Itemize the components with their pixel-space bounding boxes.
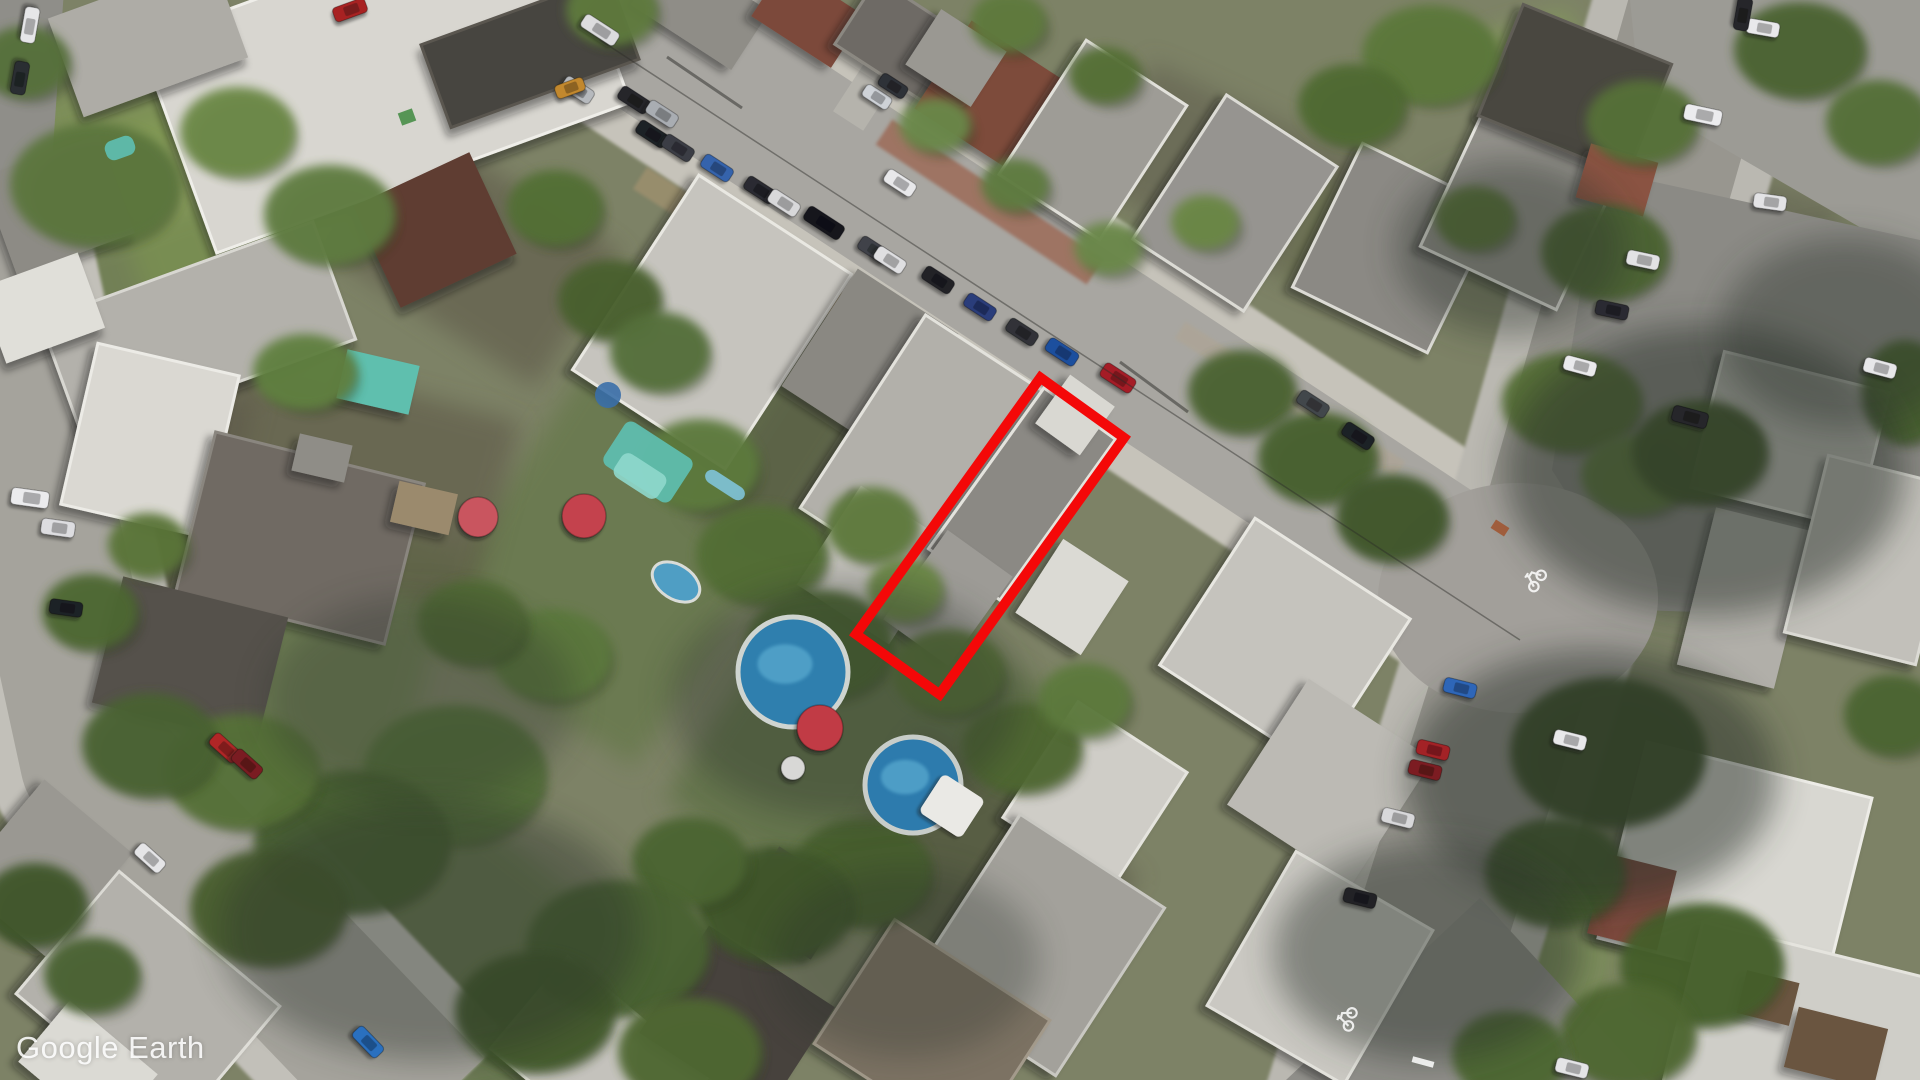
tree-canopy [82, 693, 218, 797]
tree-canopy [826, 487, 918, 563]
pool-highlight [758, 644, 813, 684]
tree-canopy [108, 513, 188, 577]
google-earth-viewport[interactable]: Google Earth [0, 0, 1920, 1080]
tree-canopy [1171, 195, 1239, 249]
tree-canopy [899, 98, 971, 152]
tree-canopy [10, 123, 180, 247]
cast-shadow [1395, 160, 1625, 336]
pool-small [595, 382, 621, 408]
tree-canopy [180, 87, 296, 177]
tree-canopy [264, 165, 396, 265]
tree-canopy [1069, 47, 1141, 103]
aerial-imagery [0, 0, 1920, 1080]
patio-umbrella [458, 497, 498, 537]
cast-shadow [1273, 844, 1583, 1060]
cast-shadow [670, 582, 1020, 818]
cast-shadow [265, 595, 575, 805]
tree-canopy [1586, 80, 1698, 164]
cast-shadow [770, 867, 1040, 1057]
tree-canopy [507, 170, 603, 246]
tree-canopy [1039, 663, 1131, 737]
tree-canopy [1298, 64, 1406, 146]
google-earth-watermark: Google Earth [16, 1030, 205, 1066]
tree-canopy [610, 312, 710, 392]
cast-shadow [220, 800, 640, 1060]
tree-canopy [1188, 350, 1296, 434]
tree-canopy [981, 159, 1049, 211]
tree-canopy [1734, 2, 1866, 98]
tree-canopy [1074, 222, 1142, 274]
patio-umbrella [797, 705, 843, 751]
patio-umbrella [562, 494, 606, 538]
tree-canopy [253, 334, 357, 410]
tree-canopy [44, 937, 140, 1013]
pool-highlight [881, 760, 929, 795]
tree-canopy [1336, 474, 1448, 562]
patio-umbrella [781, 756, 805, 780]
